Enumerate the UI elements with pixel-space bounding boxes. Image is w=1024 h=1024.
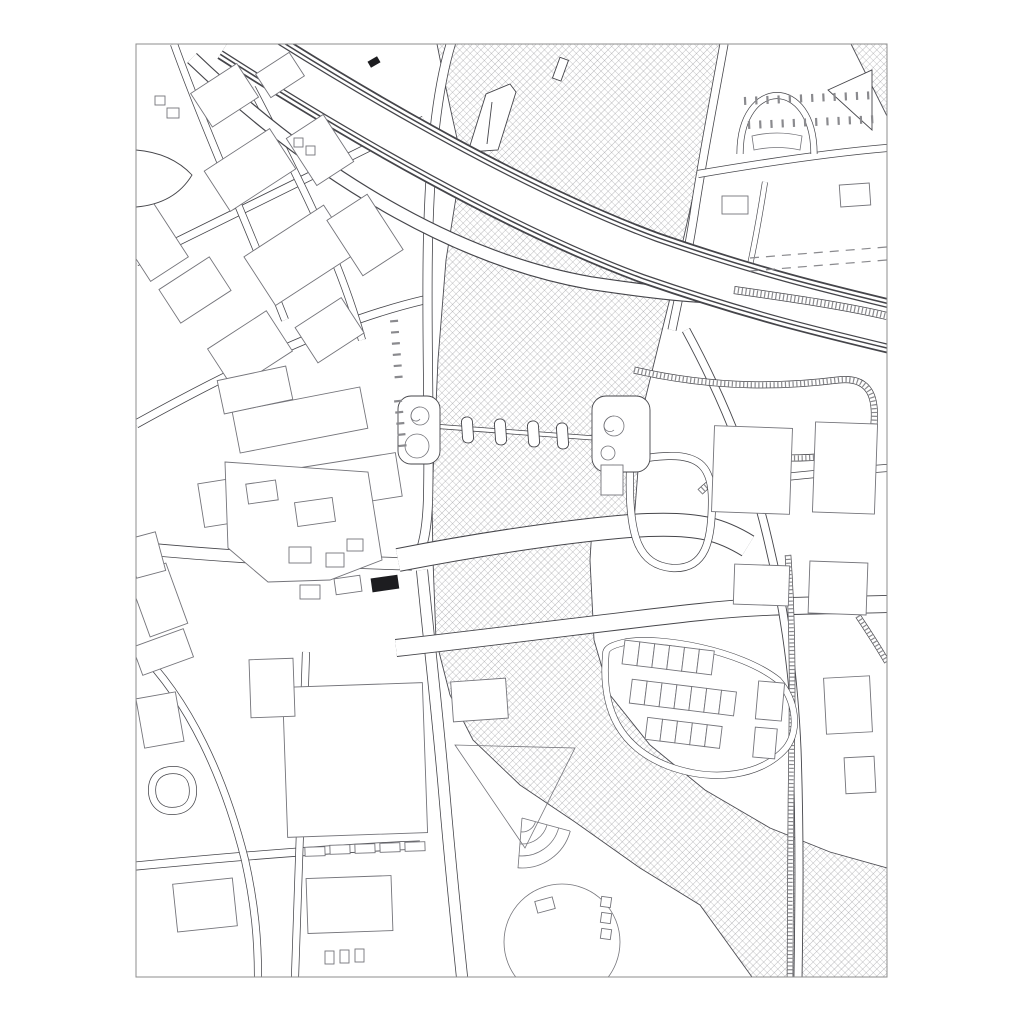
traffic-circle <box>630 456 712 568</box>
site-plan-canvas <box>0 0 1024 1024</box>
park-triangle <box>136 150 192 207</box>
dashed-rail-tracks <box>750 247 887 271</box>
site-marker <box>371 575 399 591</box>
spiral-ramp-west <box>398 396 440 464</box>
circular-plaza <box>504 884 620 1000</box>
amphitheater-steps <box>518 818 571 868</box>
site-plan <box>0 0 1024 1024</box>
roof-cap-glyph <box>368 57 380 67</box>
spiral-ramp-east <box>592 396 650 473</box>
arch-park <box>740 70 880 154</box>
arch-base-strip <box>752 133 802 150</box>
parking-row-2 <box>748 119 880 125</box>
